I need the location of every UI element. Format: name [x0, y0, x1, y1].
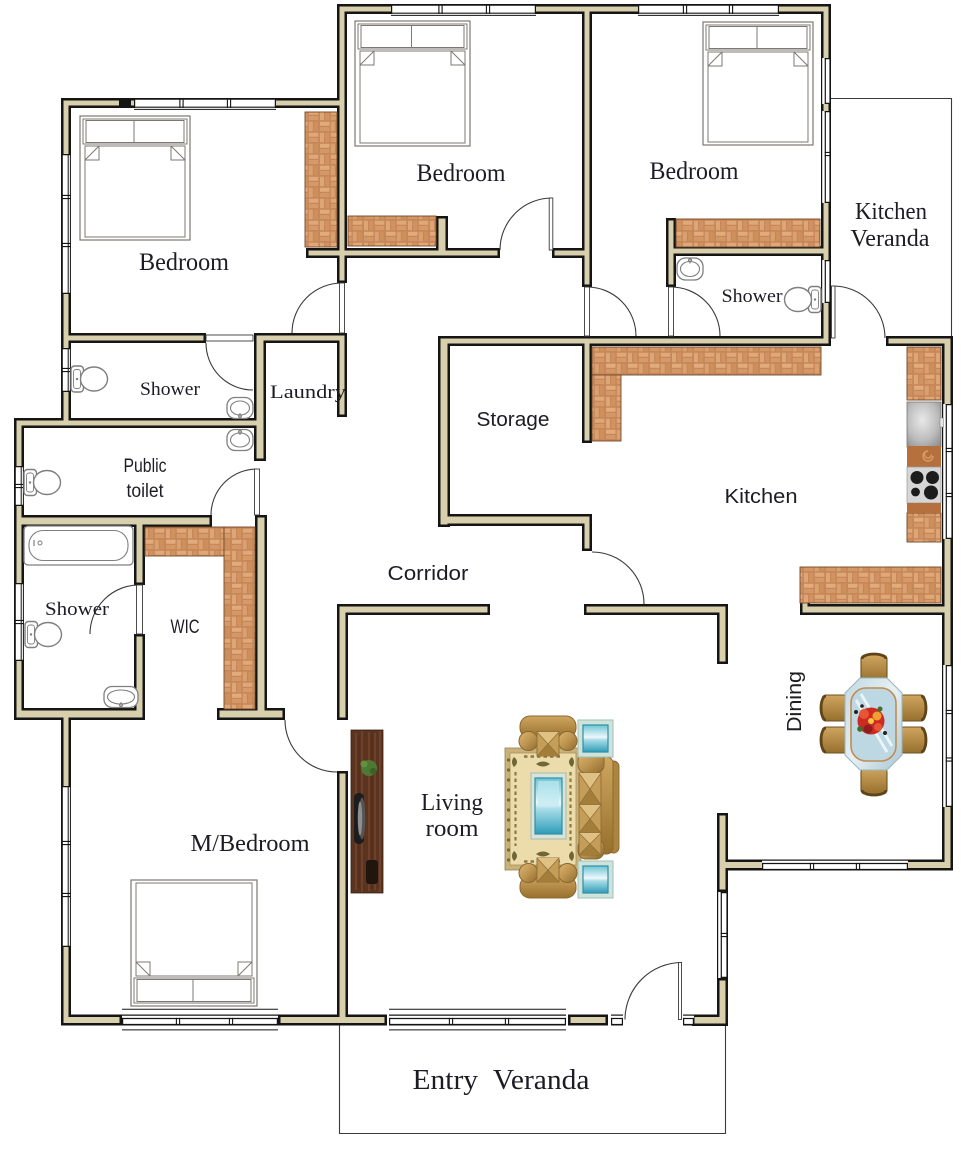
svg-text:Public: Public: [124, 456, 167, 477]
svg-text:room: room: [426, 816, 479, 842]
svg-text:Shower: Shower: [140, 379, 201, 400]
svg-text:Shower: Shower: [722, 286, 784, 307]
svg-text:Dining: Dining: [784, 671, 806, 732]
svg-text:Veranda: Veranda: [851, 226, 930, 252]
svg-text:Living: Living: [421, 790, 483, 816]
svg-text:Storage: Storage: [477, 409, 550, 431]
svg-text:Laundry: Laundry: [270, 382, 347, 403]
svg-text:toilet: toilet: [127, 481, 165, 502]
svg-text:Bedroom: Bedroom: [650, 158, 740, 185]
svg-text:Entry Veranda: Entry Veranda: [413, 1064, 590, 1096]
svg-text:WIC: WIC: [171, 617, 200, 638]
svg-text:Kitchen: Kitchen: [725, 486, 798, 508]
svg-text:Corridor: Corridor: [388, 563, 469, 585]
svg-text:Bedroom: Bedroom: [417, 160, 507, 187]
svg-text:M/Bedroom: M/Bedroom: [191, 831, 310, 857]
svg-text:Kitchen: Kitchen: [855, 199, 927, 225]
svg-text:Bedroom: Bedroom: [139, 249, 230, 276]
svg-text:Shower: Shower: [45, 599, 110, 620]
